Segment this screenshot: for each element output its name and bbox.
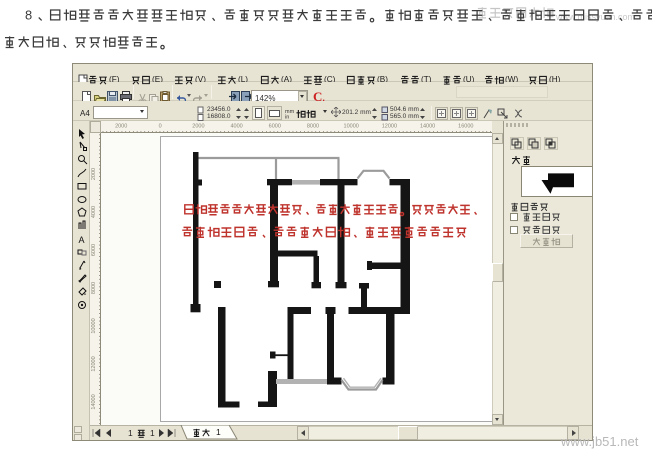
svg-text:8000: 8000	[307, 124, 319, 130]
svg-text:in: in	[285, 115, 289, 120]
svg-text:12000: 12000	[382, 124, 397, 130]
svg-text:10000: 10000	[91, 318, 97, 333]
svg-text:14000: 14000	[91, 394, 97, 409]
svg-text:2000: 2000	[115, 124, 127, 130]
svg-text:14000: 14000	[420, 124, 435, 130]
svg-text:8: 8	[25, 7, 32, 22]
svg-text:4000: 4000	[230, 124, 242, 130]
svg-text:6000: 6000	[269, 124, 281, 130]
svg-text:0: 0	[159, 124, 162, 130]
svg-text:8000: 8000	[91, 282, 97, 294]
svg-text:16000: 16000	[458, 124, 473, 130]
svg-text:12000: 12000	[91, 356, 97, 371]
svg-text:10000: 10000	[344, 124, 359, 130]
svg-text:2000: 2000	[192, 124, 204, 130]
svg-text:2000: 2000	[91, 168, 97, 180]
svg-text:4000: 4000	[91, 206, 97, 218]
svg-text:6000: 6000	[91, 244, 97, 256]
svg-text:A: A	[79, 235, 85, 245]
